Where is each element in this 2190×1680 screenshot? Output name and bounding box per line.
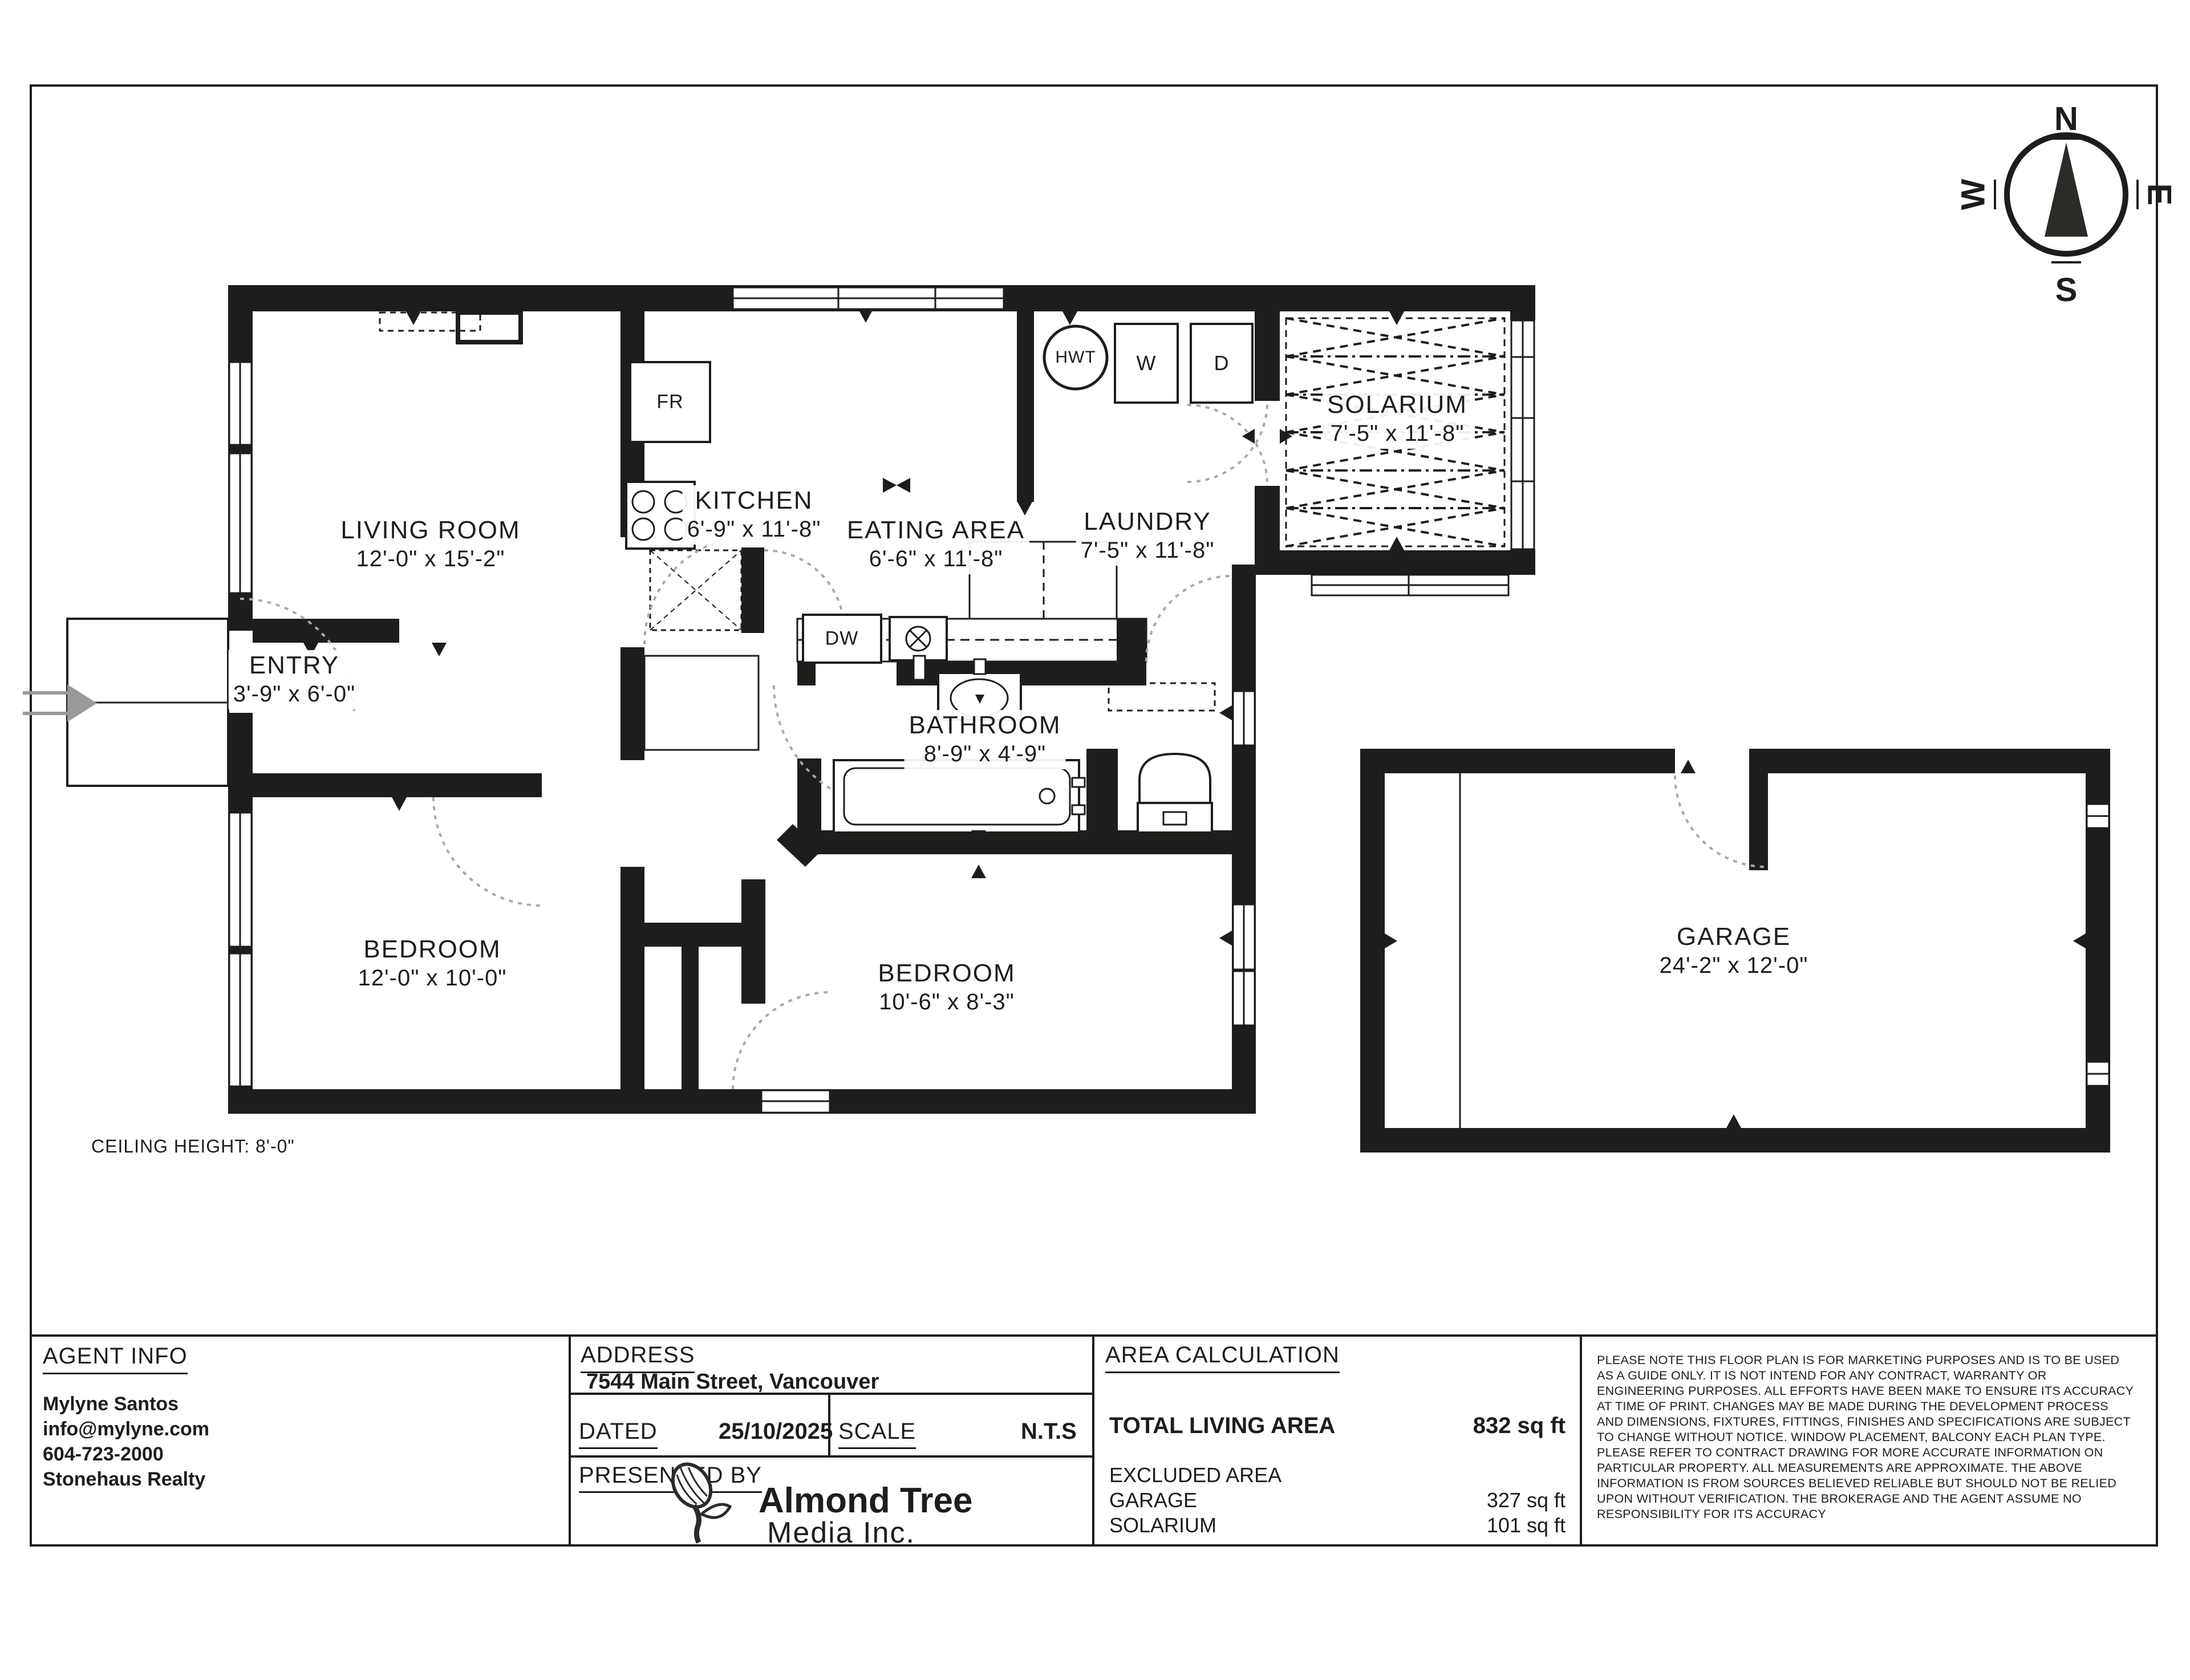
room-label-eating-area: EATING AREA 6'-6" x 11'-8" <box>842 515 1029 574</box>
fridge-label: FR <box>656 391 683 413</box>
agent-company: Stonehaus Realty <box>43 1467 205 1492</box>
compass-s: S <box>2055 271 2078 309</box>
porch-arrow <box>23 684 97 722</box>
room-label-entry: ENTRY 3'-9" x 6'-0" <box>229 650 360 709</box>
fixtures <box>626 324 1252 867</box>
bathtub <box>834 760 1085 833</box>
agent-info-heading: AGENT INFO <box>43 1344 188 1374</box>
excluded-garage-label: GARAGE <box>1109 1488 1197 1512</box>
room-label-bedroom-2: BEDROOM 10'-6" x 8'-3" <box>873 958 1020 1017</box>
room-label-laundry: LAUNDRY 7'-5" x 11'-8" <box>1076 506 1219 566</box>
almond-tree-logo-icon <box>647 1460 761 1545</box>
room-label-garage: GARAGE 24'-2" x 12'-0" <box>1654 922 1812 981</box>
room-label-living-room: LIVING ROOM 12'-0" x 15'-2" <box>336 515 525 574</box>
compass-n: N <box>2054 100 2078 137</box>
dated-row-line <box>569 1455 1094 1458</box>
compass-w: W <box>1954 178 1992 210</box>
excluded-garage-value: 327 sq ft <box>1487 1488 1566 1512</box>
logo-name: Almond Tree <box>759 1480 973 1521</box>
room-label-kitchen: KITCHEN 6'-9" x 11'-8" <box>683 485 826 545</box>
dishwasher-label: DW <box>825 628 859 650</box>
agent-phone: 604-723-2000 <box>43 1442 164 1467</box>
scale-label: SCALE <box>838 1419 916 1449</box>
compass-e: E <box>2141 184 2178 206</box>
title-block-divider-2 <box>1092 1334 1094 1547</box>
opening-markers <box>233 309 2086 1128</box>
excluded-solarium-label: SOLARIUM <box>1109 1513 1216 1537</box>
hwt-label: HWT <box>1055 348 1096 367</box>
room-label-solarium: SOLARIUM 7'-5" x 11'-8" <box>1323 389 1472 449</box>
room-label-bathroom: BATHROOM 8'-9" x 4'-9" <box>905 710 1066 769</box>
dated-value: 25/10/2025 <box>719 1419 833 1444</box>
room-label-bedroom-1: BEDROOM 12'-0" x 10'-0" <box>353 934 511 993</box>
dryer-label: D <box>1214 351 1230 375</box>
disclaimer-text: PLEASE NOTE THIS FLOOR PLAN IS FOR MARKE… <box>1597 1353 2138 1522</box>
area-calc-heading: AREA CALCULATION <box>1105 1342 1340 1373</box>
dated-label: DATED <box>579 1419 658 1449</box>
compass: N S E W <box>1954 100 2177 309</box>
title-block-divider-3 <box>1580 1334 1582 1547</box>
compass-needle <box>2045 143 2088 237</box>
logo-subname: Media Inc. <box>767 1516 915 1550</box>
total-living-area-value: 832 sq ft <box>1473 1413 1566 1439</box>
ceiling-height-note: CEILING HEIGHT: 8'-0" <box>91 1136 295 1157</box>
toilet <box>1138 754 1212 833</box>
excluded-solarium-value: 101 sq ft <box>1487 1513 1566 1537</box>
address-heading: ADDRESS <box>581 1342 695 1373</box>
excluded-area-label: EXCLUDED AREA <box>1109 1463 1281 1487</box>
scale-value: N.T.S <box>1021 1419 1077 1444</box>
washer-label: W <box>1137 351 1157 375</box>
agent-email: info@mylyne.com <box>43 1417 209 1442</box>
agent-name: Mylyne Santos <box>43 1391 179 1417</box>
total-living-area-label: TOTAL LIVING AREA <box>1109 1413 1335 1439</box>
walls <box>228 285 2110 1153</box>
address-value: 7544 Main Street, Vancouver <box>586 1370 879 1394</box>
floor-plan-page: N S E W LIVING ROOM 12'-0" x 15'-2" ENTR… <box>0 0 2190 1680</box>
title-block-divider-1 <box>569 1334 571 1547</box>
